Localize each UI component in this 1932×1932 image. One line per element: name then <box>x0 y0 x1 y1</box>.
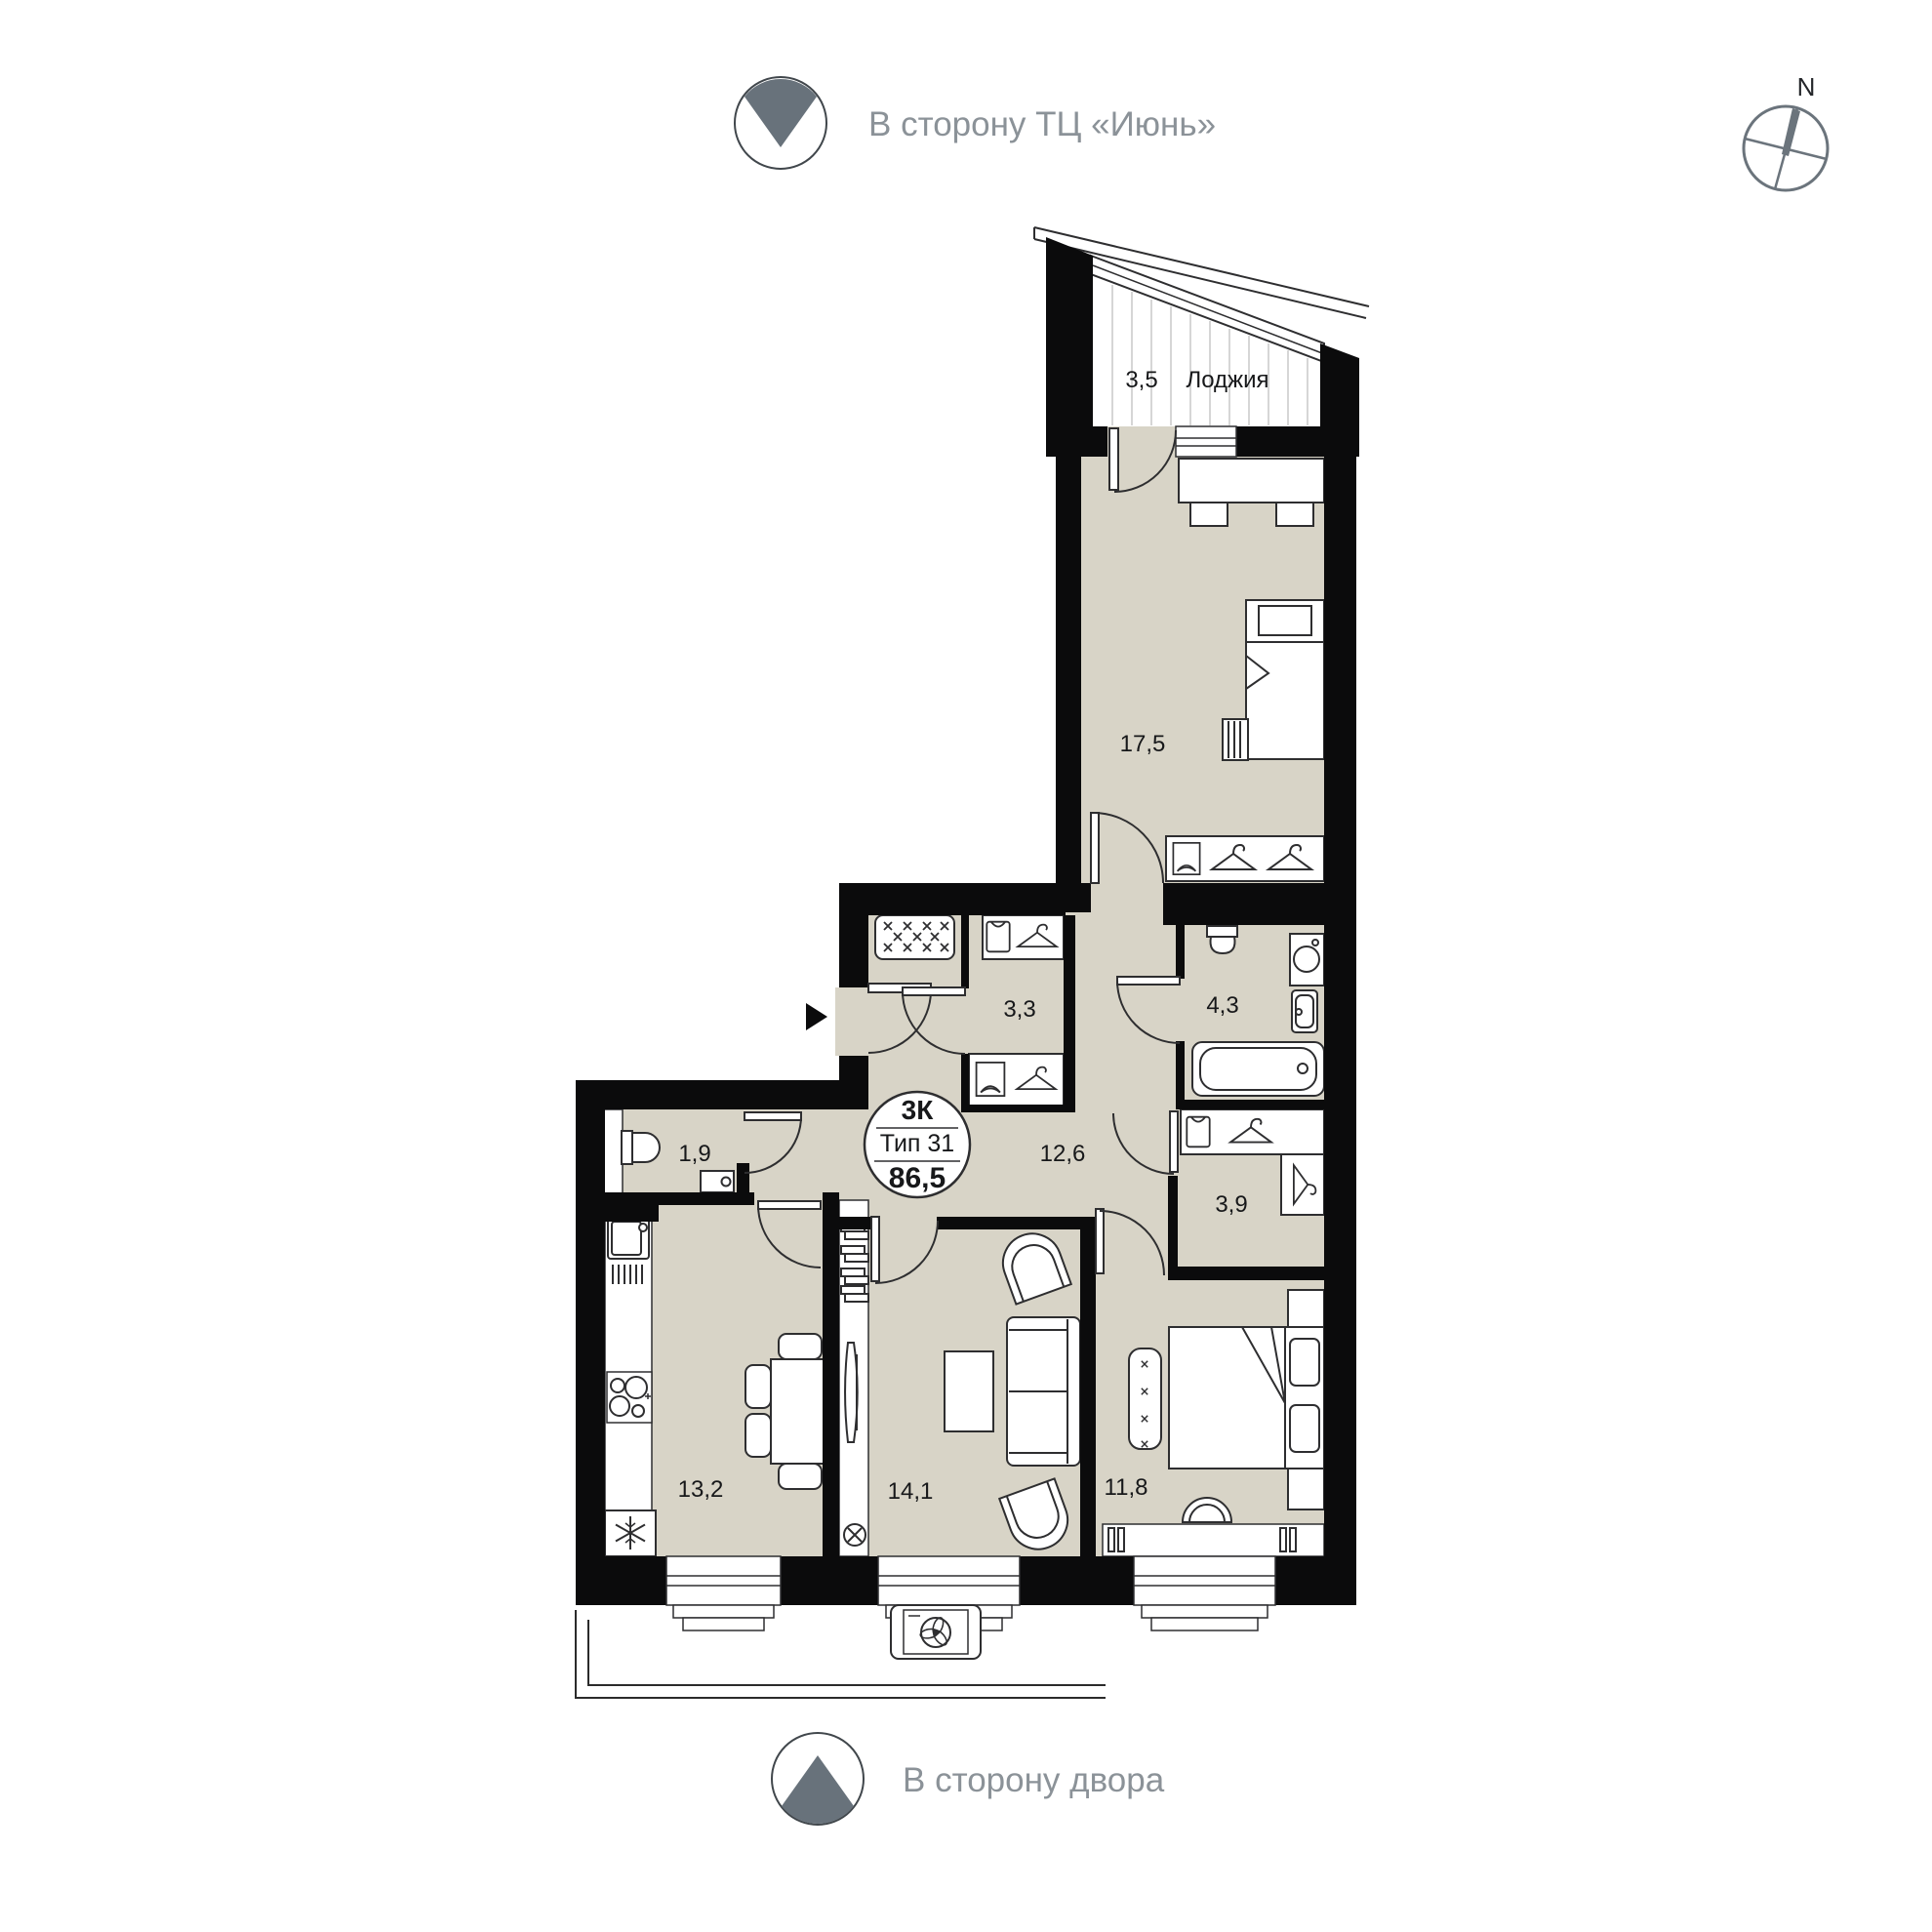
bathtub-icon <box>1192 1042 1324 1096</box>
label-wc: 1,9 <box>678 1141 710 1167</box>
direction-bottom-label: В сторону двора <box>903 1761 1165 1799</box>
label-hallway: 12,6 <box>1040 1141 1086 1167</box>
sofa-icon <box>1007 1317 1080 1466</box>
nightstand-icon-2 <box>1288 1469 1324 1509</box>
wardrobe-bedroom-top <box>1181 1109 1324 1154</box>
window-kitchen <box>666 1556 781 1630</box>
compass-north-label: N <box>1797 72 1816 101</box>
wardrobe-entry-top <box>983 915 1064 959</box>
label-bedroom-main: 17,5 <box>1120 731 1166 757</box>
nightstand-icon <box>1288 1290 1324 1327</box>
wc-sink-icon <box>701 1171 734 1192</box>
direction-top: В сторону ТЦ «Июнь» <box>735 77 1216 169</box>
badge-rooms: 3К <box>902 1095 935 1125</box>
tv-console-strip <box>839 1200 868 1556</box>
window-bedroom-second <box>1134 1556 1275 1630</box>
radiator-icon <box>1223 719 1248 760</box>
label-wardrobe-bedroom: 3,9 <box>1215 1191 1247 1218</box>
direction-bottom: В сторону двора <box>772 1733 1165 1825</box>
courtyard-boundary-line <box>576 1610 1106 1698</box>
storage-cabinet-icon <box>875 915 954 959</box>
label-wardrobe-entry: 3,3 <box>1003 996 1035 1023</box>
label-living: 14,1 <box>888 1478 934 1505</box>
window-sill-strip <box>1103 1524 1324 1556</box>
label-bathroom: 4,3 <box>1206 992 1238 1019</box>
vent-icon <box>844 1524 865 1546</box>
label-bedroom-second: 11,8 <box>1105 1474 1148 1501</box>
washing-machine-icon <box>1290 934 1324 986</box>
bed-icon-second <box>1169 1327 1324 1469</box>
label-loggia-area: 3,5 <box>1125 367 1157 393</box>
label-loggia-name: Лоджия <box>1186 367 1268 393</box>
duct-shaft <box>603 1109 623 1195</box>
floor-plan-svg: 3К Тип 31 86,5 3,5 Лоджия 17,5 3,3 4,3 1… <box>0 0 1932 1932</box>
compass: N <box>1744 72 1828 190</box>
window-loggia-wall <box>1176 426 1236 457</box>
entry-arrow-icon <box>806 1003 827 1030</box>
toilet-icon <box>1207 926 1237 953</box>
fridge-icon <box>605 1510 656 1556</box>
floor-plan-page: 3К Тип 31 86,5 3,5 Лоджия 17,5 3,3 4,3 1… <box>0 0 1932 1932</box>
bench-icon <box>1129 1348 1161 1449</box>
shelf-icons <box>841 1224 868 1302</box>
label-kitchen: 13,2 <box>678 1476 724 1503</box>
ac-unit-icon <box>891 1605 981 1659</box>
closet-bedroom-main <box>1166 836 1324 881</box>
sink-icon <box>1292 990 1317 1032</box>
badge-area: 86,5 <box>889 1162 946 1194</box>
tv-icon <box>845 1343 858 1442</box>
wc-toilet-icon <box>622 1131 660 1164</box>
wardrobe-entry-bottom <box>969 1054 1064 1106</box>
direction-top-label: В сторону ТЦ «Июнь» <box>868 105 1216 143</box>
unit-badge: 3К Тип 31 86,5 <box>865 1092 970 1197</box>
badge-type: Тип 31 <box>880 1130 954 1157</box>
bed-icon-main <box>1246 600 1324 759</box>
stove-icon <box>607 1372 652 1423</box>
coffee-table-icon <box>945 1351 993 1431</box>
wardrobe-bedroom-side <box>1281 1154 1324 1215</box>
